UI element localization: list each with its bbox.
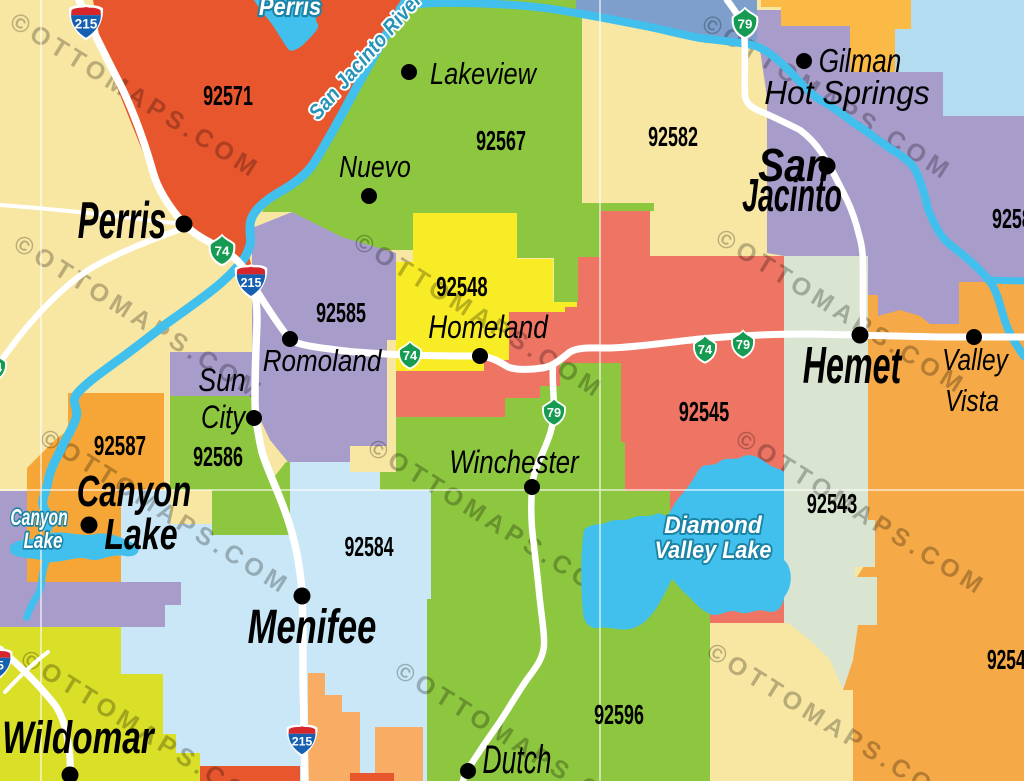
svg-text:Sun: Sun xyxy=(198,363,245,399)
svg-text:92585: 92585 xyxy=(316,297,366,328)
svg-text:Menifee: Menifee xyxy=(248,599,377,653)
svg-text:Canyon: Canyon xyxy=(77,467,192,517)
svg-text:Perris: Perris xyxy=(259,0,321,20)
svg-text:Vista: Vista xyxy=(945,383,999,417)
svg-text:Wildomar: Wildomar xyxy=(2,713,156,763)
svg-text:74: 74 xyxy=(698,342,713,357)
svg-text:92586: 92586 xyxy=(193,441,243,472)
svg-text:Hemet: Hemet xyxy=(803,337,903,395)
svg-text:74: 74 xyxy=(215,244,230,259)
svg-text:92544: 92544 xyxy=(987,644,1024,675)
svg-text:Romoland: Romoland xyxy=(263,344,383,379)
svg-text:92545: 92545 xyxy=(679,397,730,428)
svg-text:92548: 92548 xyxy=(436,272,487,303)
svg-text:92543: 92543 xyxy=(807,489,858,520)
svg-text:92582: 92582 xyxy=(648,121,698,152)
svg-text:Homeland: Homeland xyxy=(428,311,549,346)
svg-text:92567: 92567 xyxy=(476,125,526,156)
svg-text:Perris: Perris xyxy=(78,192,166,250)
svg-text:Lakeview: Lakeview xyxy=(430,57,537,92)
svg-text:Jacinto: Jacinto xyxy=(742,170,842,222)
svg-text:Hot Springs: Hot Springs xyxy=(764,74,929,111)
svg-text:215: 215 xyxy=(292,735,313,749)
svg-text:92584: 92584 xyxy=(344,531,393,562)
svg-text:Winchester: Winchester xyxy=(449,446,580,481)
svg-text:74: 74 xyxy=(403,348,418,363)
svg-text:Dutch: Dutch xyxy=(483,738,552,781)
svg-text:Valley Lake: Valley Lake xyxy=(655,536,772,563)
svg-text:92571: 92571 xyxy=(203,80,253,111)
svg-text:79: 79 xyxy=(547,405,561,420)
svg-text:215: 215 xyxy=(241,276,262,290)
svg-text:City: City xyxy=(201,400,246,435)
svg-text:79: 79 xyxy=(736,337,750,352)
svg-text:Nuevo: Nuevo xyxy=(339,149,411,183)
svg-text:92596: 92596 xyxy=(594,699,644,730)
svg-text:92587: 92587 xyxy=(94,430,146,462)
svg-text:Lake: Lake xyxy=(23,529,62,554)
svg-text:Diamond: Diamond xyxy=(664,511,762,538)
svg-text:Lake: Lake xyxy=(104,510,177,559)
svg-text:15: 15 xyxy=(0,659,4,673)
svg-text:92583: 92583 xyxy=(992,203,1024,234)
svg-text:Valley: Valley xyxy=(942,342,1010,376)
svg-text:215: 215 xyxy=(75,16,98,31)
svg-text:Canyon: Canyon xyxy=(10,505,67,531)
svg-text:79: 79 xyxy=(738,17,753,32)
